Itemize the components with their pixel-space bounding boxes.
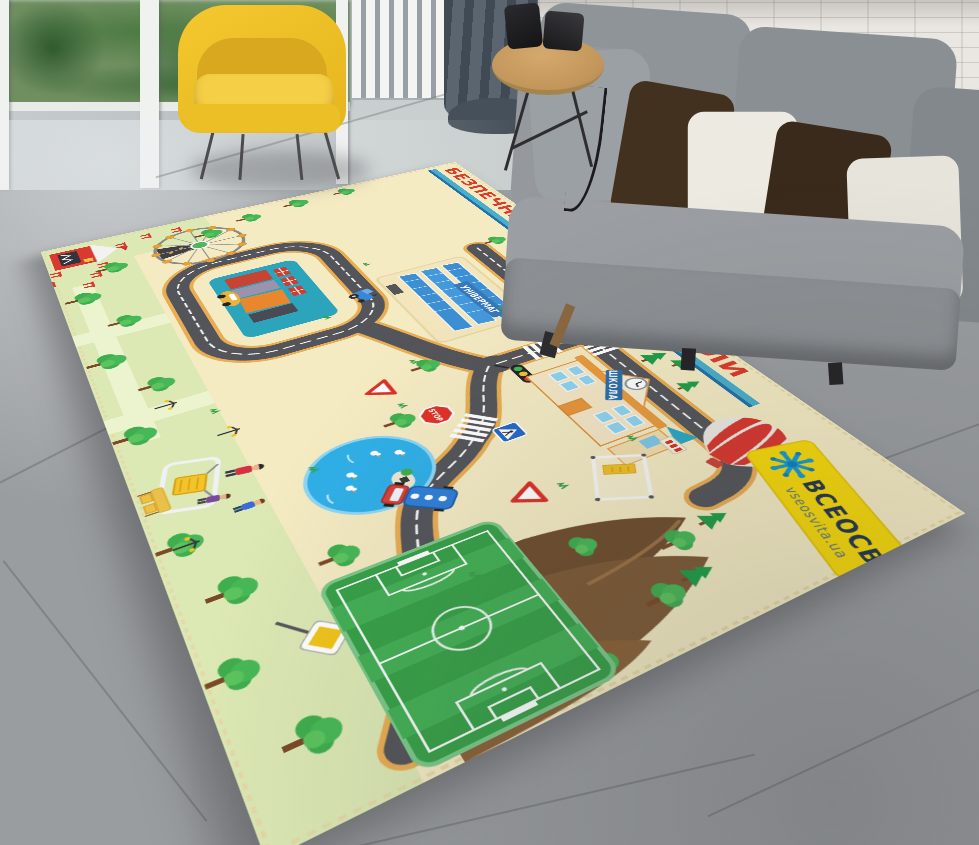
speaker-clock xyxy=(542,10,584,51)
sofa-leg xyxy=(681,348,697,371)
speaker-clock xyxy=(504,2,543,49)
radiator xyxy=(352,0,448,100)
armchair-front xyxy=(186,104,340,132)
living-room-scene: БЕЗПЕЧНА ДОРОГА ДО ШКОЛИ xyxy=(0,0,979,845)
sofa-leg xyxy=(828,362,844,385)
armchair-shadow xyxy=(190,150,370,190)
sandbox xyxy=(590,454,654,502)
floor-seam xyxy=(707,655,979,817)
